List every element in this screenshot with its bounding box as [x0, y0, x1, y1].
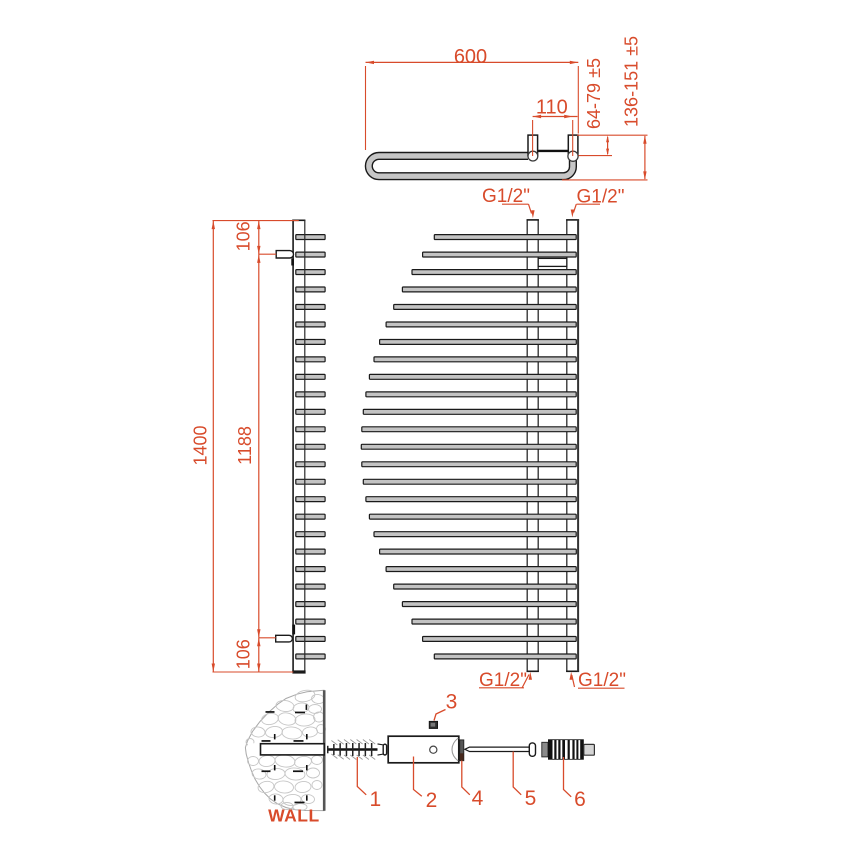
svg-text:110: 110: [536, 97, 568, 119]
svg-text:3: 3: [446, 691, 458, 714]
svg-text:WALL: WALL: [268, 806, 320, 826]
svg-text:1400: 1400: [191, 425, 211, 465]
svg-text:1188: 1188: [235, 426, 255, 465]
svg-text:5: 5: [525, 787, 537, 810]
svg-text:2: 2: [426, 789, 438, 812]
svg-text:4: 4: [472, 787, 484, 810]
svg-text:600: 600: [454, 46, 487, 68]
svg-text:64-79 ±5: 64-79 ±5: [584, 58, 604, 129]
svg-text:106: 106: [234, 639, 254, 669]
svg-text:1: 1: [370, 788, 382, 811]
svg-text:136-151 ±5: 136-151 ±5: [621, 36, 641, 127]
svg-text:106: 106: [234, 221, 254, 251]
svg-text:6: 6: [574, 788, 586, 811]
